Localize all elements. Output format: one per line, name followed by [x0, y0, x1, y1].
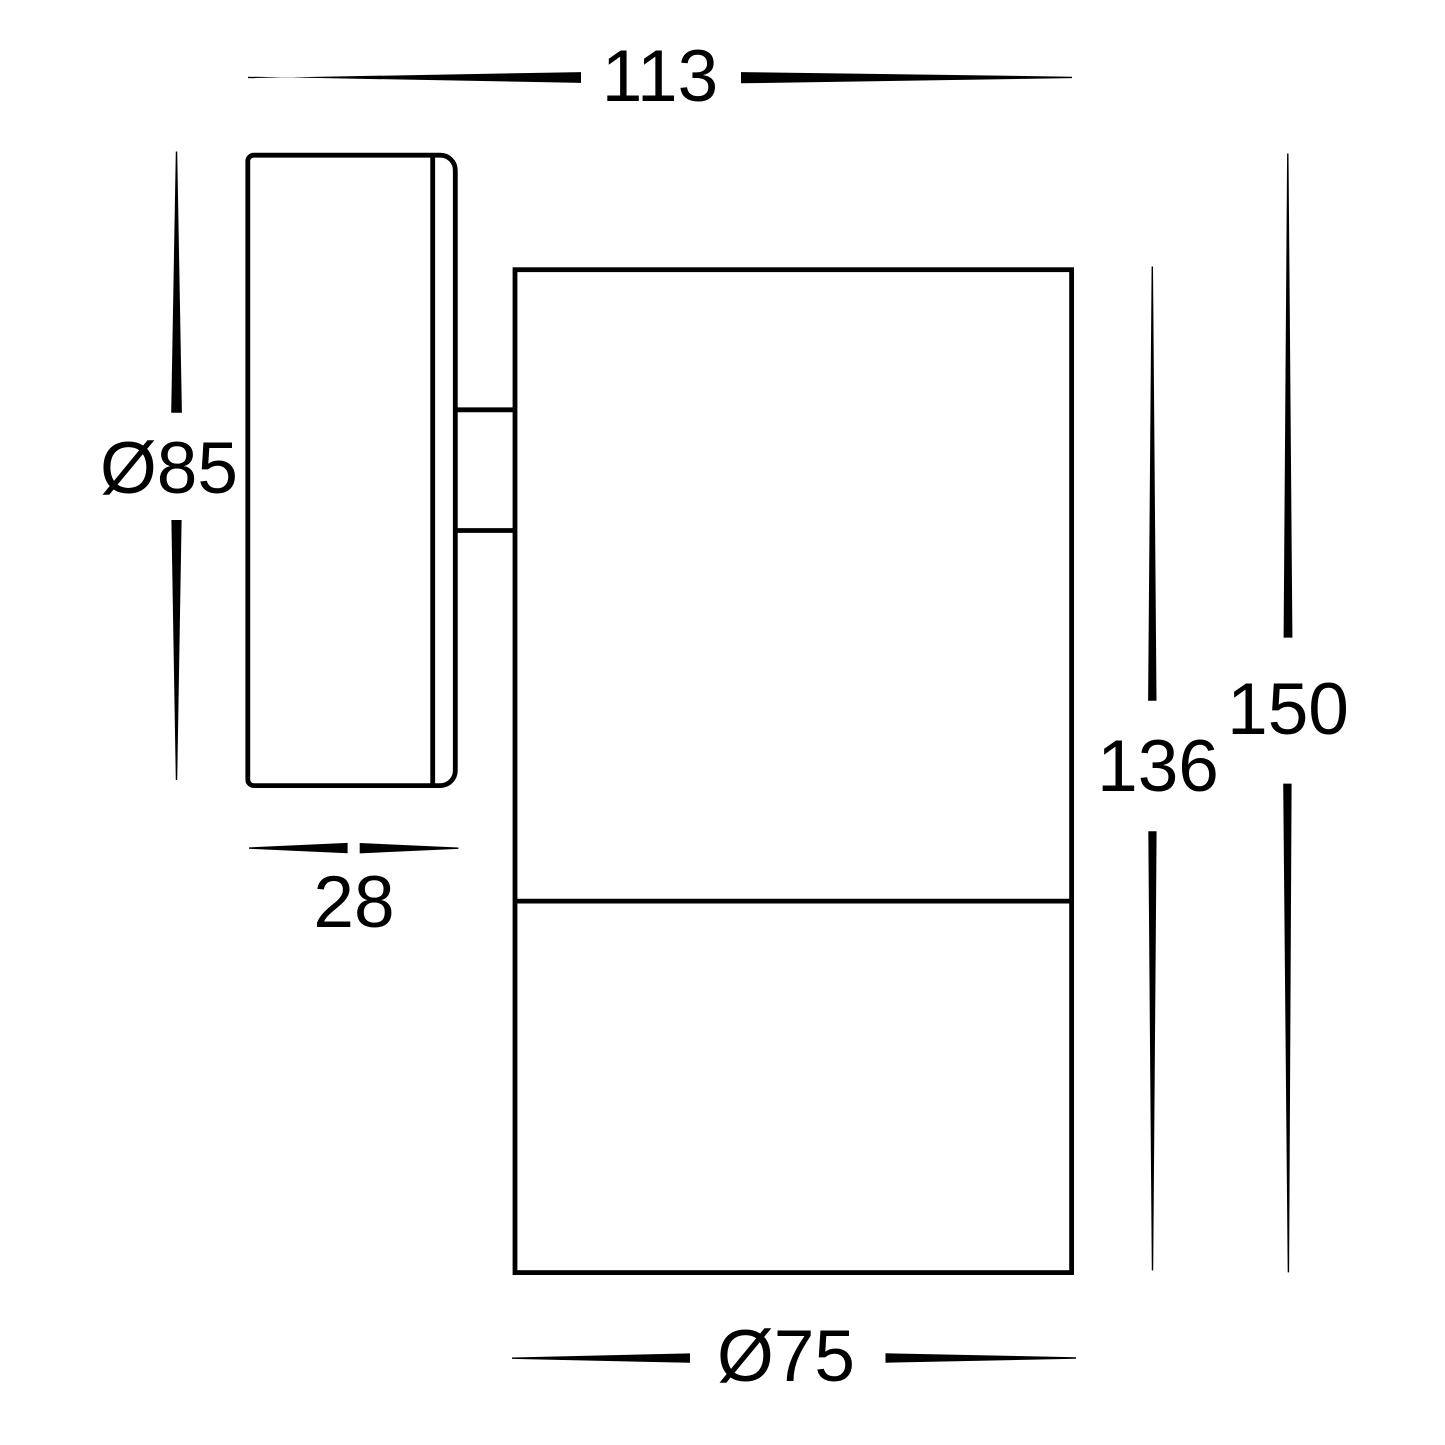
- svg-text:Ø85: Ø85: [100, 428, 238, 509]
- svg-text:28: 28: [313, 862, 394, 943]
- svg-text:136: 136: [1097, 726, 1219, 807]
- svg-text:113: 113: [602, 36, 718, 117]
- svg-text:Ø75: Ø75: [717, 1316, 855, 1397]
- svg-text:150: 150: [1227, 669, 1349, 750]
